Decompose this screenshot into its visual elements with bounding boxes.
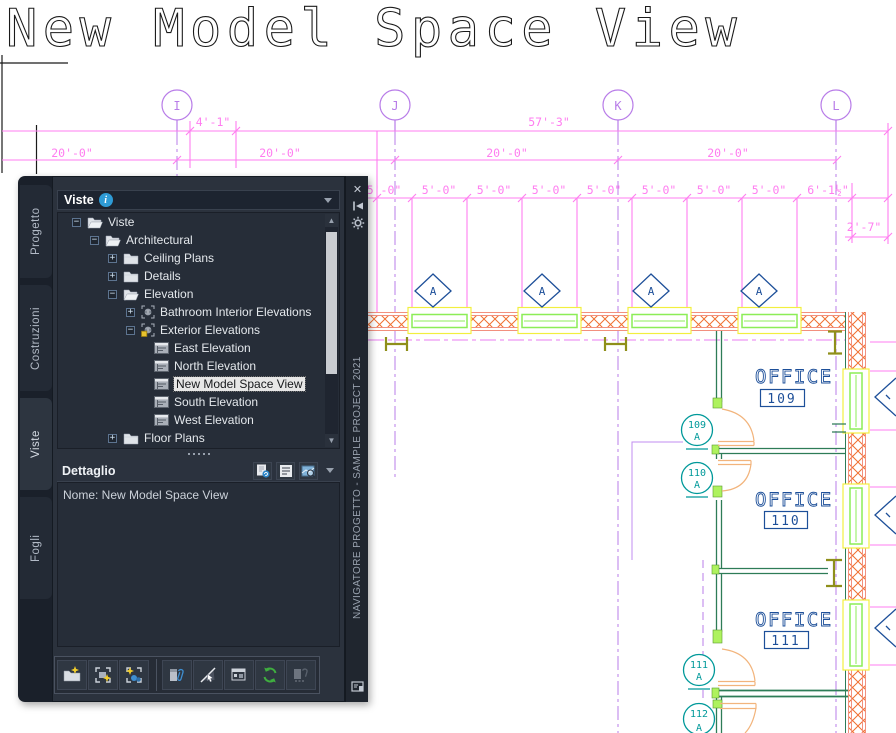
svg-text:110: 110 (771, 514, 800, 529)
toolbar-refresh-project-button[interactable] (255, 660, 285, 690)
view-icon (154, 360, 169, 372)
view-icon (154, 342, 169, 354)
svg-text:110: 110 (688, 468, 706, 479)
svg-text:OFFICE: OFFICE (755, 489, 833, 511)
detail-list-icon[interactable] (276, 462, 295, 480)
palette-vertical-title: NAVIGATORE PROGETTO - SAMPLE PROJECT 202… (346, 362, 369, 614)
info-icon[interactable]: i (99, 193, 113, 207)
svg-text:5'-0": 5'-0" (367, 183, 402, 197)
svg-text:A: A (694, 480, 700, 491)
expand-icon[interactable]: + (126, 308, 135, 317)
tree-item-label[interactable]: Floor Plans (144, 431, 205, 445)
tree-item-east-elevation[interactable]: East Elevation (58, 339, 339, 357)
palette-body: Viste i −Viste−Architectural+Ceiling Pla… (52, 176, 345, 702)
svg-text:5'-0": 5'-0" (532, 183, 567, 197)
tree-item-label[interactable]: South Elevation (174, 395, 258, 409)
expand-icon[interactable]: + (108, 434, 117, 443)
toolbar-divider (150, 659, 157, 691)
auto-hide-pin-icon[interactable] (346, 199, 369, 213)
gear-icon[interactable] (346, 216, 369, 230)
folder-open-icon (105, 234, 121, 247)
tree-item-elevation[interactable]: −Elevation (58, 285, 339, 303)
tree-item-label[interactable]: Details (144, 269, 181, 283)
elevation-new-icon (141, 323, 155, 337)
tab-viste[interactable]: Viste (20, 398, 52, 490)
detail-name-text: Nome: New Model Space View (63, 488, 339, 502)
svg-text:L: L (832, 99, 839, 113)
display-icon[interactable] (346, 680, 369, 694)
svg-text:112: 112 (690, 709, 708, 720)
toolbar-hide-button[interactable] (193, 660, 223, 690)
toolbar-new-model-space-view-button[interactable] (119, 660, 149, 690)
svg-text:109: 109 (767, 392, 796, 407)
preview-image-icon[interactable] (299, 462, 318, 480)
tree-item-label[interactable]: Bathroom Interior Elevations (160, 305, 311, 319)
svg-text:20'-0": 20'-0" (259, 146, 301, 160)
folder-icon (123, 270, 139, 283)
toolbar-new-category-button[interactable] (57, 660, 87, 690)
svg-text:57'-3": 57'-3" (528, 115, 570, 129)
tree-item-label[interactable]: New Model Space View (174, 377, 305, 391)
svg-text:A: A (539, 285, 546, 298)
detail-title: Dettaglio (62, 464, 115, 478)
folder-open-icon (87, 216, 103, 229)
svg-text:20'-0": 20'-0" (707, 146, 749, 160)
tab-fogli[interactable]: Fogli (20, 497, 52, 599)
svg-text:5'-0": 5'-0" (587, 183, 622, 197)
model-space-title: New Model Space View (6, 0, 742, 59)
project-navigator-palette: Progetto Costruzioni Viste Fogli Viste i… (18, 176, 368, 702)
scroll-down-icon[interactable]: ▼ (325, 434, 338, 447)
close-icon[interactable]: ✕ (346, 182, 369, 196)
preview-refresh-icon[interactable] (253, 462, 272, 480)
panel-splitter[interactable] (53, 449, 344, 459)
scroll-up-icon[interactable]: ▲ (325, 214, 338, 227)
tree-item-viste[interactable]: −Viste (58, 213, 339, 231)
svg-text:109: 109 (688, 420, 706, 431)
svg-text:5'-0": 5'-0" (477, 183, 512, 197)
tree-item-details[interactable]: +Details (58, 267, 339, 285)
palette-tab-strip: Progetto Costruzioni Viste Fogli (18, 176, 52, 702)
svg-text:I: I (173, 99, 180, 113)
tree-item-south-elevation[interactable]: South Elevation (58, 393, 339, 411)
svg-text:6'-1½": 6'-1½" (807, 183, 849, 197)
svg-text:111: 111 (690, 660, 708, 671)
grid-letters: I J K L (173, 99, 839, 113)
grid-bubbles (162, 90, 851, 131)
svg-text:A: A (648, 285, 655, 298)
svg-text:A: A (756, 285, 763, 298)
toolbar-repath-xref-button[interactable] (286, 660, 316, 690)
tree-scrollbar[interactable]: ▲ ▼ (325, 214, 338, 447)
tree-item-north-elevation[interactable]: North Elevation (58, 357, 339, 375)
folder-open-icon (123, 288, 139, 301)
elevation-icon (141, 305, 155, 319)
collapse-icon[interactable]: − (72, 218, 81, 227)
svg-text:A: A (430, 285, 437, 298)
svg-text:A: A (694, 432, 700, 443)
svg-text:2'-7": 2'-7" (847, 220, 882, 234)
tab-progetto[interactable]: Progetto (20, 185, 52, 278)
view-icon (154, 414, 169, 426)
svg-text:OFFICE: OFFICE (755, 366, 833, 388)
tree-item-label[interactable]: East Elevation (174, 341, 251, 355)
svg-text:20'-0": 20'-0" (486, 146, 528, 160)
svg-text:OFFICE: OFFICE (755, 609, 833, 631)
tree-item-label[interactable]: Viste (108, 215, 134, 229)
tree-item-new-model-space-view[interactable]: New Model Space View (58, 375, 339, 393)
expand-icon[interactable]: + (108, 254, 117, 263)
room-labels: OFFICE 109 OFFICE 110 OFFICE 111 (755, 366, 833, 649)
folder-icon (123, 432, 139, 445)
svg-text:20'-0": 20'-0" (51, 146, 93, 160)
svg-text:5'-0": 5'-0" (697, 183, 732, 197)
tree-item-label[interactable]: Exterior Elevations (160, 323, 260, 337)
view-icon (154, 396, 169, 408)
svg-text:A: A (696, 723, 702, 733)
detail-panel-header: Dettaglio (57, 460, 340, 482)
view-icon (154, 378, 169, 390)
svg-text:111: 111 (771, 634, 800, 649)
toolbar-properties-button[interactable] (224, 660, 254, 690)
svg-text:4'-1": 4'-1" (196, 115, 231, 129)
chevron-down-icon[interactable] (326, 468, 334, 473)
toolbar-attach-xref-button[interactable] (162, 660, 192, 690)
doors (718, 409, 756, 733)
svg-text:5'-0": 5'-0" (422, 183, 457, 197)
chevron-down-icon[interactable] (324, 198, 332, 203)
tree-item-ceiling-plans[interactable]: +Ceiling Plans (58, 249, 339, 267)
tree-item-floor-plans[interactable]: +Floor Plans (58, 429, 339, 447)
palette-title-bar[interactable]: ✕ NAVIGATORE PROGETTO - SAMPLE PROJECT 2… (345, 176, 368, 702)
svg-text:A: A (696, 672, 702, 683)
door-tag-circles: 109 A 110 A 111 A 112 A (682, 415, 715, 733)
svg-text:J: J (391, 99, 398, 113)
palette-toolbar (54, 656, 320, 694)
detail-panel: Nome: New Model Space View (57, 482, 340, 647)
svg-text:K: K (614, 99, 622, 113)
tree-item-label[interactable]: Elevation (144, 287, 193, 301)
tree-item-label[interactable]: Ceiling Plans (144, 251, 214, 265)
views-tree: −Viste−Architectural+Ceiling Plans+Detai… (57, 212, 340, 449)
tree-item-bathroom-interior-elevations[interactable]: +Bathroom Interior Elevations (58, 303, 339, 321)
tag-leader-line (632, 442, 683, 560)
expand-icon[interactable]: + (108, 272, 117, 281)
folder-icon (123, 252, 139, 265)
tab-costruzioni[interactable]: Costruzioni (20, 285, 52, 391)
svg-text:5'-0": 5'-0" (642, 183, 677, 197)
right-wall-windows (843, 369, 869, 670)
scrollbar-thumb[interactable] (326, 232, 337, 374)
toolbar-new-view-button[interactable] (88, 660, 118, 690)
panel-title: Viste (64, 193, 94, 207)
autocad-workspace: New Model Space View I J K L (0, 0, 896, 733)
svg-text:5'-0": 5'-0" (752, 183, 787, 197)
collapse-icon[interactable]: − (108, 290, 117, 299)
tree-item-label[interactable]: North Elevation (174, 359, 256, 373)
tree-item-label[interactable]: West Elevation (174, 413, 254, 427)
tree-item-label[interactable]: Architectural (126, 233, 193, 247)
collapse-icon[interactable]: − (126, 326, 135, 335)
tree-item-west-elevation[interactable]: West Elevation (58, 411, 339, 429)
tree-item-architectural[interactable]: −Architectural (58, 231, 339, 249)
viste-panel-header[interactable]: Viste i (57, 190, 340, 210)
tree-item-exterior-elevations[interactable]: −Exterior Elevations (58, 321, 339, 339)
collapse-icon[interactable]: − (90, 236, 99, 245)
